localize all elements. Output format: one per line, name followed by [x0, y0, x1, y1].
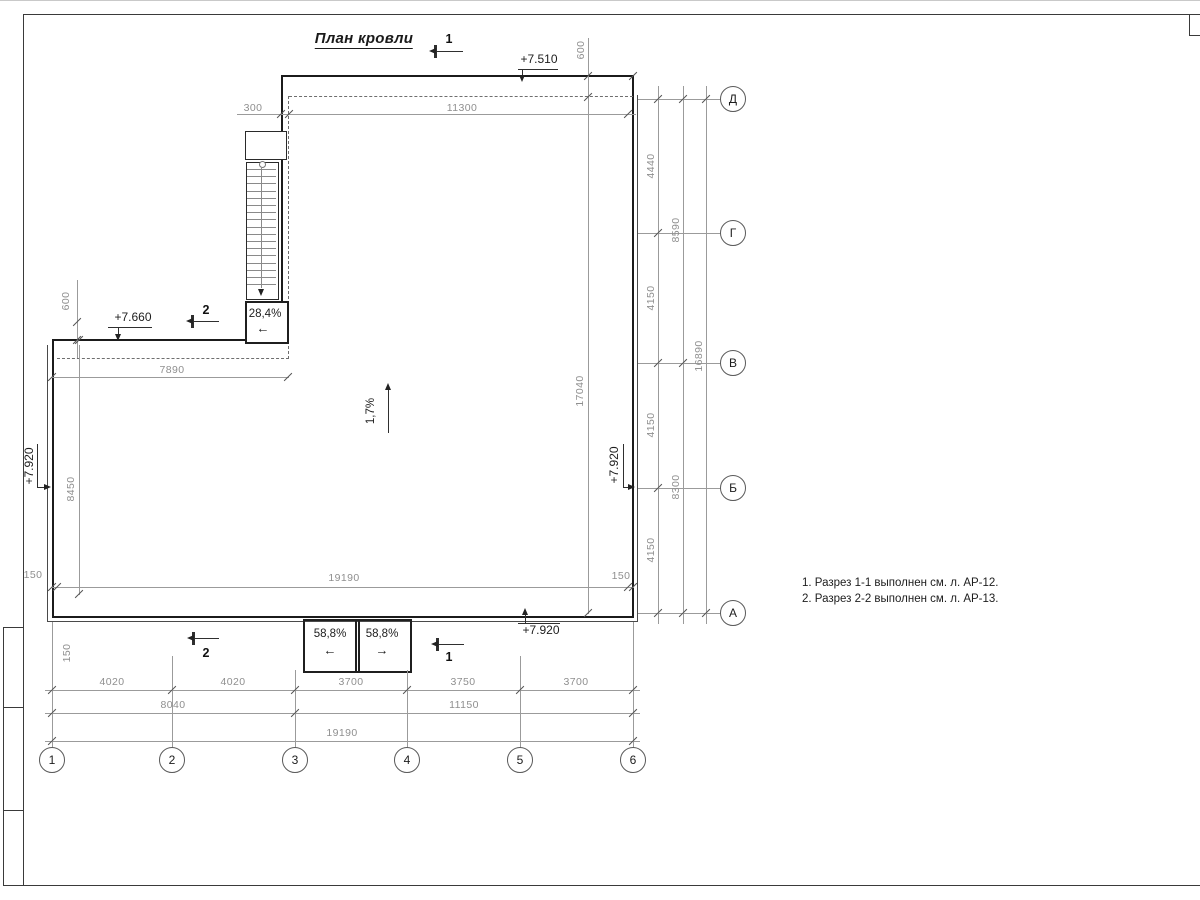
- note-section-1: 1. Разрез 1-1 выполнен см. л. АР-12.: [802, 577, 999, 589]
- dim-label-16890: 16890: [693, 340, 705, 371]
- dim-line-7890: [52, 377, 289, 378]
- ladder-rung: [247, 183, 276, 184]
- grid-bubble-3: 3: [282, 747, 308, 773]
- ladder-rung: [247, 270, 276, 271]
- note-section-2: 2. Разрез 2-2 выполнен см. л. АР-13.: [802, 593, 999, 605]
- ladder-rung: [247, 234, 276, 235]
- grid-label: 2: [169, 753, 176, 767]
- ladder-rung: [247, 205, 276, 206]
- grid-label: А: [729, 606, 737, 620]
- dim-line-17040: [588, 97, 589, 614]
- section-mark-line: [437, 51, 463, 52]
- dim-label-150-below: 150: [61, 644, 73, 663]
- margin-divider: [3, 627, 23, 628]
- section-mark-arrow: [429, 48, 436, 54]
- dim-chain-bottom-3: [45, 741, 640, 742]
- ladder-rung: [247, 191, 276, 192]
- ladder-rung: [247, 277, 276, 278]
- dim-label-4150-b: 4150: [645, 413, 657, 438]
- elevation-arrow: [522, 608, 528, 615]
- ladder-rung: [247, 263, 276, 264]
- drawing-sheet: План кровли 28,4% ← 58,8% ← 58,8% → 1,7%…: [0, 0, 1200, 900]
- grid-bubble-6: 6: [620, 747, 646, 773]
- grid-label: В: [729, 356, 737, 370]
- elevation-wing: +7.660: [114, 310, 151, 324]
- grid-bubble-v: В: [720, 350, 746, 376]
- frame-bottom: [3, 885, 1200, 886]
- dim-chain-right-1: [658, 86, 659, 624]
- dim-chain-bottom-2: [45, 713, 640, 714]
- dim-line-600-top: [588, 38, 589, 100]
- elevation-leader: [108, 327, 152, 328]
- dim-line-top: [237, 114, 636, 115]
- frame-top: [23, 14, 1200, 15]
- arrow-left-icon: ←: [257, 321, 270, 336]
- dim-label-19190-inner: 19190: [328, 572, 359, 584]
- dim-label-600-top: 600: [575, 41, 587, 60]
- canopy-right-slope: 58,8%: [366, 628, 399, 640]
- ladder-rung: [247, 212, 276, 213]
- grid-label: 5: [517, 753, 524, 767]
- dashed-roof-edge-top: [289, 96, 633, 97]
- grid-extension-4: [407, 670, 408, 748]
- arrow-left-icon: ←: [324, 643, 337, 658]
- elevation-left-wall: +7.920: [22, 447, 36, 484]
- margin-column-line: [3, 627, 4, 886]
- dim-line-8450: [79, 345, 80, 595]
- ladder-rung: [247, 255, 276, 256]
- section-mark-arrow: [431, 641, 438, 647]
- dim-label-17040: 17040: [574, 375, 586, 406]
- dim-label-7890: 7890: [160, 364, 185, 376]
- grid-label: 1: [49, 753, 56, 767]
- dim-label-8040: 8040: [161, 699, 186, 711]
- elevation-leader: [37, 444, 38, 488]
- wall-bottom: [52, 616, 634, 618]
- section-mark-top-label: 1: [446, 32, 453, 46]
- wall-left: [52, 339, 54, 618]
- grid-extension-1: [52, 622, 53, 748]
- dim-label-4020-a: 4020: [100, 676, 125, 688]
- elevation-right-wall: +7.920: [607, 446, 621, 483]
- grid-label: Б: [729, 481, 737, 495]
- ladder-direction-arrow: [258, 289, 264, 296]
- elevation-roof-high: +7.510: [520, 52, 557, 66]
- grid-extension-6: [633, 622, 634, 748]
- canopy-left-slope: 58,8%: [314, 628, 347, 640]
- dim-label-300: 300: [244, 102, 263, 114]
- ladder-rung: [247, 176, 276, 177]
- section-mark-line: [194, 321, 219, 322]
- dim-label-4020-b: 4020: [221, 676, 246, 688]
- corner-stamp-box: [1189, 14, 1200, 36]
- ladder-rung: [247, 241, 276, 242]
- dim-label-4150-a: 4150: [645, 286, 657, 311]
- section-mark-bottom-left-label: 2: [203, 646, 210, 660]
- dim-label-8590: 8590: [670, 218, 682, 243]
- dim-label-8300: 8300: [670, 475, 682, 500]
- section-mark-bottom-right-label: 1: [446, 650, 453, 664]
- dim-chain-right-2: [683, 86, 684, 624]
- elevation-leader: [518, 69, 558, 70]
- dim-label-600-wing: 600: [60, 292, 72, 311]
- elevation-arrow: [44, 484, 51, 490]
- grid-bubble-d: Д: [720, 86, 746, 112]
- grid-label: Г: [730, 226, 737, 240]
- dim-label-150-left: 150: [24, 569, 43, 581]
- dim-label-11300: 11300: [447, 102, 477, 114]
- stair-landing-box: [245, 131, 287, 160]
- grid-label: 4: [404, 753, 411, 767]
- dim-label-8450: 8450: [65, 477, 77, 502]
- wall-face-right: [637, 95, 638, 622]
- dim-chain-right-3: [706, 86, 707, 624]
- section-mark-wing-label: 2: [203, 303, 210, 317]
- ladder-rung: [247, 284, 276, 285]
- wall-top: [281, 75, 634, 77]
- roof-slope-label: 1,7%: [365, 398, 377, 424]
- dashed-roof-edge-wing: [57, 358, 289, 359]
- grid-bubble-1: 1: [39, 747, 65, 773]
- stair-slope-label: 28,4%: [249, 308, 282, 320]
- elevation-bottom-wall: +7.920: [522, 623, 559, 637]
- dim-label-4150-c: 4150: [645, 538, 657, 563]
- ladder-rung: [247, 248, 276, 249]
- wall-right: [632, 75, 634, 618]
- page-title: План кровли: [315, 30, 413, 48]
- grid-bubble-g: Г: [720, 220, 746, 246]
- arrow-right-icon: →: [376, 643, 389, 658]
- section-mark-arrow: [186, 318, 193, 324]
- dim-label-3700-a: 3700: [339, 676, 364, 688]
- grid-bubble-b: Б: [720, 475, 746, 501]
- grid-bubble-a: А: [720, 600, 746, 626]
- dim-label-4440: 4440: [645, 154, 657, 179]
- margin-divider: [3, 707, 23, 708]
- grid-extension-5: [520, 656, 521, 748]
- dim-label-3750: 3750: [451, 676, 476, 688]
- section-mark-arrow: [187, 635, 194, 641]
- dim-label-19190-bottom: 19190: [326, 727, 357, 739]
- ladder-rung: [247, 169, 276, 170]
- grid-label: Д: [729, 92, 737, 106]
- ladder-top-circle: [259, 161, 266, 168]
- elevation-leader: [118, 327, 119, 334]
- grid-label: 3: [292, 753, 299, 767]
- sheet-edge-top: [0, 0, 1200, 1]
- grid-bubble-4: 4: [394, 747, 420, 773]
- section-mark-line: [439, 644, 464, 645]
- section-mark-line: [195, 638, 219, 639]
- grid-extension-3: [295, 670, 296, 748]
- ladder-rung: [247, 198, 276, 199]
- dim-label-3700-b: 3700: [564, 676, 589, 688]
- elevation-arrow: [628, 484, 635, 490]
- dim-chain-bottom-1: [45, 690, 640, 691]
- roof-slope-arrow-head: [385, 383, 391, 390]
- elevation-arrow: [519, 75, 525, 82]
- elevation-arrow: [115, 334, 121, 341]
- dim-label-150-right: 150: [612, 570, 631, 582]
- roof-slope-arrow-line: [388, 389, 389, 433]
- elevation-leader: [623, 444, 624, 488]
- elevation-leader: [518, 623, 560, 624]
- ladder-rung: [247, 219, 276, 220]
- grid-label: 6: [630, 753, 637, 767]
- grid-bubble-5: 5: [507, 747, 533, 773]
- dim-line-19190-inner: [52, 587, 634, 588]
- grid-bubble-2: 2: [159, 747, 185, 773]
- margin-divider: [3, 810, 23, 811]
- ladder-rung: [247, 227, 276, 228]
- dim-label-11150: 11150: [449, 699, 479, 711]
